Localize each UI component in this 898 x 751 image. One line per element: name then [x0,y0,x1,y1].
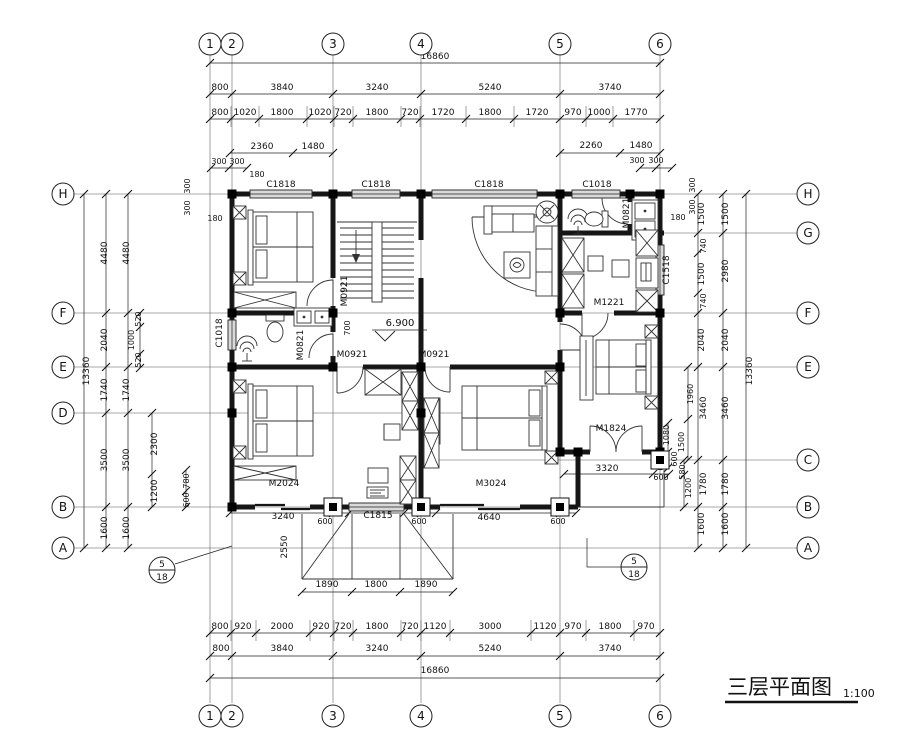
dim-label: 2000 [271,622,294,632]
dim-label: 1720 [526,108,549,118]
dim-label: 300 [183,178,192,193]
dim-label: 1890 [415,580,438,590]
dim-label: C1818 [474,180,503,190]
stair-arrow-head [352,254,360,263]
dim-label: 1200 [684,478,693,498]
hall-closets [365,369,439,504]
dim-label: 970 [564,108,581,118]
grid-lines [74,55,797,703]
grid-bubble-bottom-6: 6 [656,709,664,723]
dim-label: 800 [211,108,228,118]
grid-bubble-right-A: A [804,541,813,555]
grid-bubble-left-A: A [59,541,68,555]
grid-bubble-top-5: 5 [556,37,564,51]
side-table [588,256,603,271]
grid-bubble-right-H: H [803,187,812,201]
title-block: 三层平面图 1:100 [725,675,875,702]
toilet-left-tank [266,315,284,321]
dim-label: 3500 [100,448,110,471]
dim-label: 300 [183,200,192,215]
floor-plan-drawing: 6.900 1686080038403240524037408001020180… [0,0,898,751]
dim-label: 1800 [479,108,502,118]
dim-label: 2550 [280,535,290,558]
door-m0921-left [337,367,363,393]
grid-bubble-left-D: D [58,406,67,420]
dim-label: 1480 [302,142,325,152]
detail-marker-den: 18 [628,570,640,580]
dim-label: 300 [211,157,226,166]
dim-label: 970 [564,622,581,632]
dim-label: 3840 [271,644,294,654]
dim-label: 3460 [721,396,731,419]
dim-label: M1221 [594,298,625,308]
grid-bubble-bottom-4: 4 [417,709,425,723]
dim-label: 1020 [309,108,332,118]
dim-label: 13360 [82,356,92,385]
dim-label: 180 [249,170,264,179]
dim-label: 3840 [271,83,294,93]
dim-label: 1500 [677,432,686,452]
dim-label: 4640 [478,513,501,523]
dim-label: 600 [550,517,565,526]
dim-label: 800 [211,622,228,632]
grid-bubble-right-F: F [805,306,812,320]
bed-bottomleft [233,380,313,459]
dim-label: 1780 [699,472,709,495]
dim-label: 1800 [271,108,294,118]
grid-bubble-left-H: H [58,187,67,201]
dim-label: 300 [648,156,663,165]
sofa-set [484,201,558,296]
grid-bubble-left-B: B [59,500,67,514]
dim-label: 3500 [122,448,132,471]
dim-label: 800 [211,83,228,93]
dim-label: 720 [334,622,351,632]
grid-bubble-right-G: G [803,226,812,240]
dim-label: 3740 [599,644,622,654]
floor-plan-page: 6.900 1686080038403240524037408001020180… [0,0,898,751]
grid-bubble-bottom-2: 2 [228,709,236,723]
hall-table [368,468,388,483]
grid-bubble-top-4: 4 [417,37,425,51]
grid-bubble-bottom-3: 3 [329,709,337,723]
dim-label: 600 [653,473,668,482]
level-triangle-icon [375,331,395,341]
grid-bubble-left-E: E [59,360,67,374]
coffee-table [504,252,530,278]
washer [367,487,388,498]
dim-label: 180 [670,213,685,222]
dim-label: 1800 [599,622,622,632]
dim-label: 1800 [366,108,389,118]
dim-label: 1120 [424,622,447,632]
dim-label: 300 [688,177,697,192]
dim-label: 1020 [234,108,257,118]
dim-label: M0821 [296,330,306,361]
grid-bubble-left-F: F [60,306,67,320]
door-m0921-right [425,367,450,392]
dim-label: 2040 [100,328,110,351]
grid-bubble-right-B: B [804,500,812,514]
grid-bubble-top-2: 2 [228,37,236,51]
shower-topright [568,209,588,234]
dim-label: 3240 [366,644,389,654]
dim-label: C1818 [266,180,295,190]
detail-marker-den: 18 [156,573,168,583]
grid-bubble-top-3: 3 [329,37,337,51]
level-value: 6.900 [386,318,415,329]
dim-label: M0821 [622,198,632,229]
dim-label: 5240 [479,644,502,654]
dim-label: 1600 [697,512,707,535]
dim-label: 720 [401,108,418,118]
dim-label: 720 [334,108,351,118]
detail-marker-num: 5 [159,560,165,570]
dim-label: 1890 [316,580,339,590]
dim-label: 1800 [366,622,389,632]
grid-bubble-right-C: C [804,453,812,467]
dim-label: 1780 [721,472,731,495]
dim-label: 2040 [721,328,731,351]
dim-label: 2360 [251,142,274,152]
grid-bubble-bottom-1: 1 [206,709,214,723]
bed-bottommiddle [462,371,558,464]
dim-label: 2980 [721,259,731,282]
dim-label: 920 [234,622,251,632]
dim-label: 3240 [366,83,389,93]
dim-label: 740 [699,293,708,308]
dim-label: 3740 [599,83,622,93]
dim-label: 180 [207,214,222,223]
dim-label: M0921 [340,276,350,307]
dim-label: 2300 [150,432,160,455]
desk [636,258,658,288]
dim-label: M0921 [337,350,368,360]
dim-label: M0921 [419,350,450,360]
dim-label: 13360 [745,356,755,385]
dim-label: 4480 [122,241,132,264]
dim-label: 780 [182,473,191,488]
dim-label: C1018 [215,318,225,347]
dresser-midright [580,336,593,400]
dim-label: 520 [134,352,143,367]
dim-label: 1600 [100,516,110,539]
dim-label: 2040 [697,328,707,351]
bed-midright [596,325,658,409]
dim-label: 3320 [596,464,619,474]
dim-label: 1000 [588,108,611,118]
dim-label: 1740 [100,378,110,401]
dim-label: 920 [312,622,329,632]
dim-label: C1815 [363,511,392,521]
dim-label: 300 [229,157,244,166]
dim-label: 1080 [662,425,671,445]
dim-label: 5240 [479,83,502,93]
bathroom-left [237,308,332,361]
dim-label: 16860 [421,666,450,676]
dim-label: 300 [688,199,697,214]
dim-label: 1720 [432,108,455,118]
dim-label: 1600 [721,512,731,535]
dim-label: 600 [670,451,679,466]
dim-label: 800 [212,644,229,654]
dim-label: 1600 [122,516,132,539]
dim-label: 1500 [697,262,707,285]
dim-label: 300 [629,156,644,165]
desk-chair [612,260,629,277]
dim-label: 1740 [122,378,132,401]
drawing-title: 三层平面图 [727,675,832,699]
grid-bubble-top-1: 1 [206,37,214,51]
dim-label: 3240 [272,512,295,522]
dim-label: 2260 [580,141,603,151]
dim-label: 600 [411,517,426,526]
dim-label: 1800 [365,580,388,590]
dim-label: C1518 [662,255,672,284]
grid-bubble-top-6: 6 [656,37,664,51]
dim-label: M3024 [476,479,507,489]
dim-label: C1818 [361,180,390,190]
door-m1221 [582,313,608,339]
shower-left [237,336,257,361]
dim-label: 1500 [721,202,731,225]
grid-bubble-bottom-5: 5 [556,709,564,723]
dim-label: 4480 [100,241,110,264]
dim-label: 1500 [697,202,707,225]
door-bath-left [309,334,333,358]
dim-label: 1770 [625,108,648,118]
hall-chair [384,424,400,440]
toilet-topright [585,212,603,226]
dim-label: 970 [637,622,654,632]
door-bedroom-topleft [307,280,333,306]
dim-label: 1480 [630,141,653,151]
dim-label: 1000 [127,330,136,350]
dim-label: 740 [699,238,708,253]
bed-topleft [233,206,313,285]
dim-label: 580 [678,464,687,479]
dim-label: 700 [343,320,352,335]
drawing-scale: 1:100 [843,687,875,700]
dim-label: 720 [401,622,418,632]
dim-label: 600 [317,517,332,526]
dim-label: 1200 [150,479,160,502]
dim-label: 520 [134,311,143,326]
dim-label: 1120 [534,622,557,632]
dim-label: C1018 [582,180,611,190]
dim-label: 1960 [686,384,695,404]
dim-label: M2024 [269,479,300,489]
detail-marker-num: 5 [631,557,637,567]
dim-label: M1824 [596,424,627,434]
detail-leaders [175,538,621,567]
dim-label: 3000 [479,622,502,632]
grid-bubble-right-E: E [804,360,812,374]
dim-label: 3460 [699,396,709,419]
dim-label: 600 [182,492,191,507]
stair-stringer [372,222,382,302]
toilet-left [267,322,283,342]
